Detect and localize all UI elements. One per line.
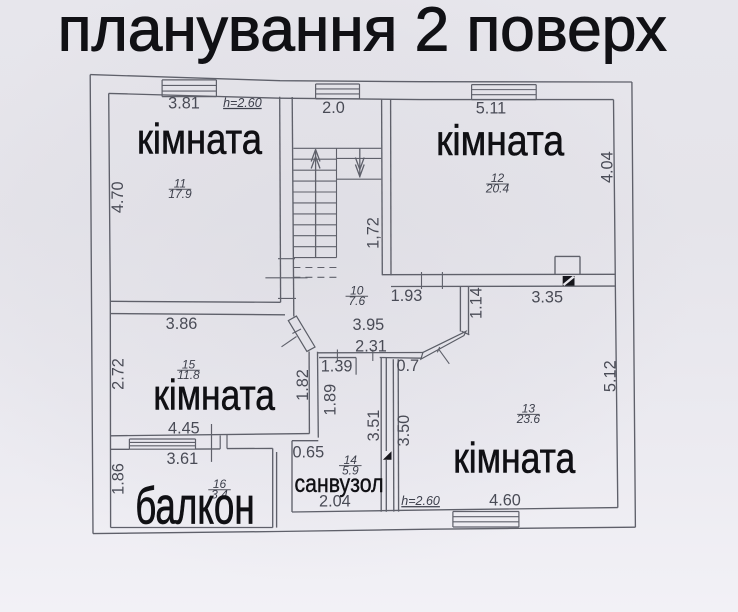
svg-text:0.7: 0.7 bbox=[396, 357, 419, 375]
svg-text:планування 2 поверх: планування 2 поверх bbox=[58, 0, 667, 65]
svg-text:кімната: кімната bbox=[137, 116, 262, 164]
svg-text:20.4: 20.4 bbox=[485, 182, 510, 196]
svg-text:17.9: 17.9 bbox=[168, 187, 192, 201]
svg-text:санвузол: санвузол bbox=[295, 470, 384, 498]
svg-text:4.60: 4.60 bbox=[489, 492, 521, 510]
svg-text:3.81: 3.81 bbox=[168, 94, 200, 112]
svg-text:h=2.60: h=2.60 bbox=[401, 494, 440, 508]
svg-text:1.39: 1.39 bbox=[321, 358, 353, 376]
svg-text:5.11: 5.11 bbox=[476, 100, 506, 118]
svg-text:1,72: 1,72 bbox=[365, 217, 383, 249]
svg-text:3.51: 3.51 bbox=[365, 410, 383, 442]
svg-text:4.70: 4.70 bbox=[109, 181, 127, 213]
svg-text:1.86: 1.86 bbox=[109, 463, 127, 495]
svg-text:7.6: 7.6 bbox=[348, 294, 365, 308]
svg-text:3.61: 3.61 bbox=[166, 450, 198, 468]
svg-text:4.04: 4.04 bbox=[599, 151, 617, 183]
svg-text:h=2.60: h=2.60 bbox=[223, 96, 262, 110]
svg-text:2.0: 2.0 bbox=[322, 99, 345, 117]
svg-text:4.45: 4.45 bbox=[168, 419, 200, 437]
svg-text:1.14: 1.14 bbox=[468, 287, 486, 319]
svg-text:балкон: балкон bbox=[135, 478, 255, 536]
svg-text:23.6: 23.6 bbox=[516, 412, 541, 426]
svg-text:2.31: 2.31 bbox=[355, 337, 387, 355]
svg-text:0.65: 0.65 bbox=[292, 444, 324, 462]
svg-text:1.89: 1.89 bbox=[321, 384, 339, 416]
svg-text:кімната: кімната bbox=[453, 435, 575, 483]
svg-text:кімната: кімната bbox=[153, 372, 275, 420]
svg-text:кімната: кімната bbox=[436, 117, 564, 165]
svg-text:3.95: 3.95 bbox=[353, 316, 385, 334]
svg-text:3.35: 3.35 bbox=[531, 289, 563, 307]
svg-text:1.93: 1.93 bbox=[391, 287, 423, 305]
svg-text:3.50: 3.50 bbox=[395, 415, 413, 447]
svg-text:5.12: 5.12 bbox=[601, 360, 619, 392]
svg-text:3.86: 3.86 bbox=[166, 315, 198, 333]
svg-text:2.72: 2.72 bbox=[110, 358, 128, 390]
svg-text:1.82: 1.82 bbox=[294, 369, 312, 401]
